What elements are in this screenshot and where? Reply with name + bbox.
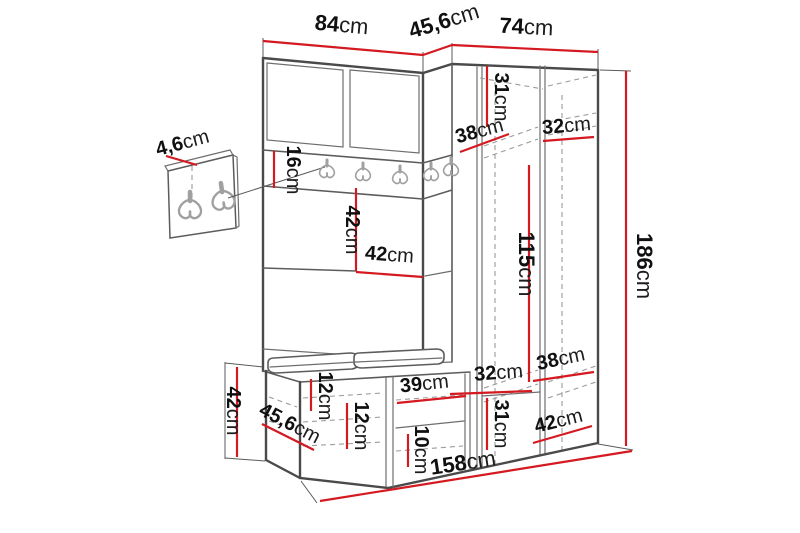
upper-cabinet-doors <box>267 63 419 153</box>
dimension-diagram-page: 84cm 45,6cm 74cm 31cm 38cm 32cm 4,6cm 16… <box>0 0 800 533</box>
dim-panel-thickness-label: 4,6cm <box>153 126 211 161</box>
hook-leader-line <box>228 167 325 198</box>
dim-bottom-compartment-height-label: 31cm <box>490 400 512 449</box>
dim-bench-height-label: 42cm <box>222 387 244 436</box>
dim-total-height-label: 186cm <box>632 233 657 299</box>
coat-hook-icon <box>424 163 439 180</box>
furniture-dimension-diagram: 84cm 45,6cm 74cm 31cm 38cm 32cm 4,6cm 16… <box>0 0 800 533</box>
dim-hanging-height-label: 115cm <box>514 232 539 297</box>
dim-top-compartment-height-label: 31cm <box>490 73 512 122</box>
coat-hook-icon <box>393 166 408 183</box>
dim-width-right-label: 74cm <box>499 13 554 41</box>
dim-bottom-shelf-depth-label: 38cm <box>535 343 587 375</box>
coat-hook-icon <box>444 158 459 175</box>
dim-depth-top-label: 45,6cm <box>406 0 482 43</box>
dim-top-shelf-width-label: 32cm <box>541 113 592 139</box>
coat-hook-icon <box>356 163 371 180</box>
dim-rail-height-label: 16cm <box>282 146 304 195</box>
coat-hook-icon <box>320 160 335 177</box>
dim-niche-height-label: 42cm <box>341 206 363 255</box>
dim-shoe-compartment-width-label: 39cm <box>399 371 450 398</box>
dim-top-shelf-depth-label: 38cm <box>453 114 506 148</box>
dim-shoe-shelf-height-label: 10cm <box>410 426 432 475</box>
dim-niche-width-label: 42cm <box>364 242 414 267</box>
dim-bench-shelf-1-label: 12cm <box>314 372 336 421</box>
dim-bottom-shelf-width-label: 32cm <box>473 360 523 385</box>
dim-width-left-label: 84cm <box>314 10 370 40</box>
dim-bench-shelf-2-label: 12cm <box>350 402 372 451</box>
